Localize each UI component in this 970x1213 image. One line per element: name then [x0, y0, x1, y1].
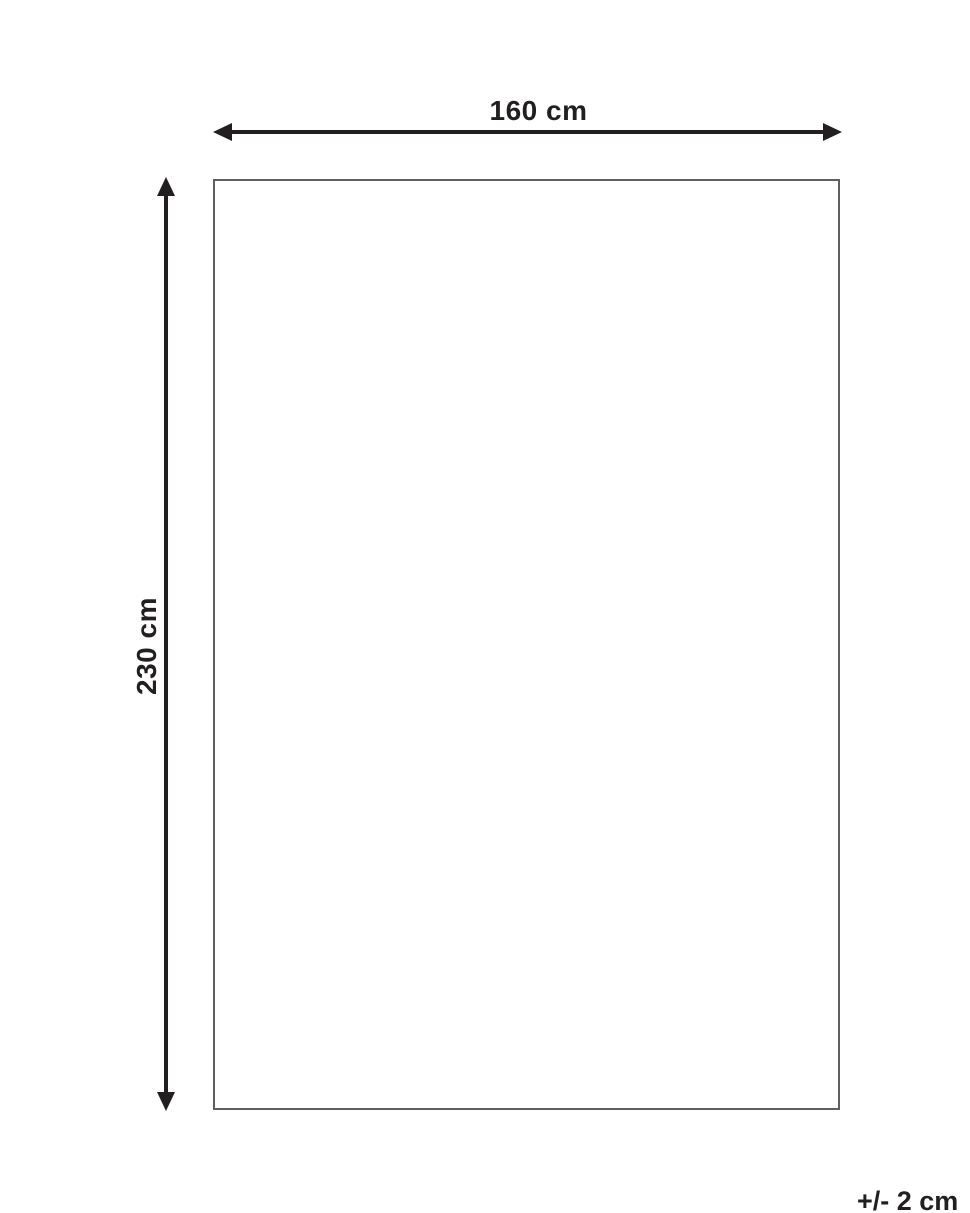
arrowhead-down-icon: [157, 1092, 175, 1111]
arrowhead-up-icon: [157, 177, 175, 196]
dimension-diagram: 160 cm 230 cm +/- 2 cm: [0, 0, 970, 1213]
width-dimension-arrow: [213, 121, 842, 143]
height-arrow-line: [164, 196, 168, 1092]
width-arrow-line: [232, 130, 823, 134]
product-outline-rectangle: [213, 179, 840, 1110]
arrowhead-left-icon: [213, 123, 232, 141]
tolerance-label: +/- 2 cm: [857, 1186, 958, 1213]
height-dimension-arrow: [155, 177, 177, 1111]
arrowhead-right-icon: [823, 123, 842, 141]
